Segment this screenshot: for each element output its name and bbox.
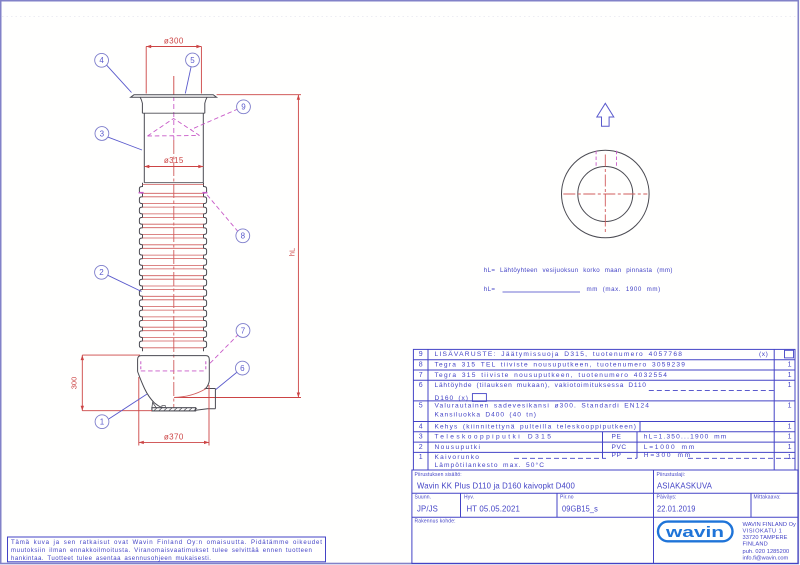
svg-text:5: 5 [190, 56, 195, 65]
svg-text:Wavin KK Plus D110 ja D160 kai: Wavin KK Plus D110 ja D160 kaivopkt D400 [417, 481, 575, 490]
svg-text:1: 1 [788, 403, 792, 410]
svg-text:Rakennus kohde:: Rakennus kohde: [415, 518, 456, 524]
svg-text:ø300: ø300 [164, 37, 184, 46]
svg-text:wavin: wavin [665, 525, 724, 541]
svg-text:PVC: PVC [612, 444, 627, 451]
svg-text:L=1000 mm: L=1000 mm [644, 444, 695, 451]
svg-text:hL=1.350...1900 mm: hL=1.350...1900 mm [644, 434, 727, 441]
svg-text:Suunn.: Suunn. [415, 494, 432, 500]
svg-text:1: 1 [788, 382, 792, 389]
svg-text:hL: hL [288, 248, 297, 256]
svg-text:1: 1 [419, 454, 423, 461]
svg-text:Pir.no: Pir.no [560, 494, 574, 500]
svg-text:1: 1 [788, 434, 792, 441]
svg-text:Mittakaava:: Mittakaava: [754, 494, 781, 500]
svg-text:09GB15_s: 09GB15_s [562, 504, 598, 513]
svg-text:4: 4 [99, 56, 104, 65]
svg-text:7: 7 [241, 326, 246, 335]
svg-text:muutoksiin ilman ennakkoilmo: muutoksiin ilman ennakkoilmoitusta. Vira… [11, 547, 312, 554]
svg-text:Tegra 315 TEL tiiviste nou: Tegra 315 TEL tiiviste nousuputkeen, tuo… [435, 362, 686, 369]
svg-text:33720 TAMPERE: 33720 TAMPERE [743, 535, 788, 541]
svg-text:1: 1 [788, 444, 792, 451]
svg-text:4: 4 [419, 423, 423, 430]
svg-text:1: 1 [788, 423, 792, 430]
svg-text:PP: PP [612, 452, 622, 459]
svg-text:Kansiluokka D400 (40 tn): Kansiluokka D400 (40 tn) [435, 412, 537, 419]
svg-text:HT 05.05.2021: HT 05.05.2021 [467, 504, 521, 513]
svg-text:7: 7 [419, 372, 423, 379]
svg-text:VISIOKATU 1: VISIOKATU 1 [743, 528, 782, 534]
svg-text:1: 1 [100, 418, 105, 427]
svg-text:info.fi@wavin.com: info.fi@wavin.com [743, 556, 789, 562]
svg-text:Päiväys:: Päiväys: [657, 494, 677, 500]
svg-text:2: 2 [419, 444, 423, 451]
svg-text:FINLAND: FINLAND [743, 542, 768, 548]
svg-text:Valurautainen sadevesikansi: Valurautainen sadevesikansi ø300. Standa… [435, 403, 650, 410]
svg-text:5: 5 [419, 403, 423, 410]
svg-text:Kehys (kiinnitettynä pulteil: Kehys (kiinnitettynä pulteilla teleskoop… [435, 423, 637, 430]
svg-text:mm (max. 1900 mm): mm (max. 1900 mm) [587, 286, 661, 293]
svg-text:PE: PE [612, 434, 622, 441]
svg-text:8: 8 [419, 362, 423, 369]
svg-text:6: 6 [419, 382, 423, 389]
svg-text:Lähtöyhde (tilauksen mukaan): Lähtöyhde (tilauksen mukaan), vakiotoimi… [435, 382, 647, 389]
svg-text:(x): (x) [759, 351, 768, 358]
svg-text:hL=: hL= [484, 286, 496, 293]
svg-text:1: 1 [788, 372, 792, 379]
svg-text:6: 6 [240, 364, 245, 373]
svg-text:D160 (x): D160 (x) [435, 395, 469, 402]
svg-text:9: 9 [241, 103, 246, 112]
svg-text:hL= Lähtöyhteen vesijuoksun: hL= Lähtöyhteen vesijuoksun korko maan p… [484, 267, 673, 274]
svg-text:22.01.2019: 22.01.2019 [657, 504, 696, 513]
svg-text:ø370: ø370 [164, 433, 184, 442]
svg-text:Piirustuksen sisältö:: Piirustuksen sisältö: [415, 472, 462, 478]
svg-text:1: 1 [788, 362, 792, 369]
svg-text:Nousuputki: Nousuputki [435, 444, 481, 451]
svg-text:Hyv.: Hyv. [464, 494, 474, 500]
svg-text:JP/JS: JP/JS [417, 504, 438, 513]
svg-text:300: 300 [70, 377, 79, 390]
svg-text:ASIAKASKUVA: ASIAKASKUVA [657, 481, 712, 490]
svg-text:ø315: ø315 [164, 156, 184, 165]
svg-text:Tämä kuva ja sen ratkaisut: Tämä kuva ja sen ratkaisut ovat Wavin Fi… [11, 539, 322, 546]
svg-text:2: 2 [99, 268, 104, 277]
svg-text:Piirustuslaji:: Piirustuslaji: [657, 472, 686, 478]
svg-text:3: 3 [100, 129, 105, 138]
svg-text:1: 1 [788, 454, 792, 461]
svg-text:hankintaa. Tuotteet tulee a: hankintaa. Tuotteet tulee asentaa asennu… [11, 555, 211, 562]
svg-text:3: 3 [419, 434, 423, 441]
svg-text:9: 9 [419, 351, 423, 358]
svg-text:Tegra 315 tiiviste nousuput: Tegra 315 tiiviste nousuputkeen, tuotenu… [435, 372, 668, 379]
svg-text:LISÄVARUSTE: Jäätymissuoja D: LISÄVARUSTE: Jäätymissuoja D315, tuotenu… [435, 350, 683, 358]
svg-text:8: 8 [241, 232, 246, 241]
svg-text:Kaivorunko: Kaivorunko [435, 454, 480, 461]
svg-text:puh. 020 1285200: puh. 020 1285200 [743, 549, 790, 555]
svg-text:WAVIN FINLAND Oy: WAVIN FINLAND Oy [743, 522, 797, 528]
svg-text:Lämpötilankesto max. 50°C: Lämpötilankesto max. 50°C [435, 461, 545, 469]
